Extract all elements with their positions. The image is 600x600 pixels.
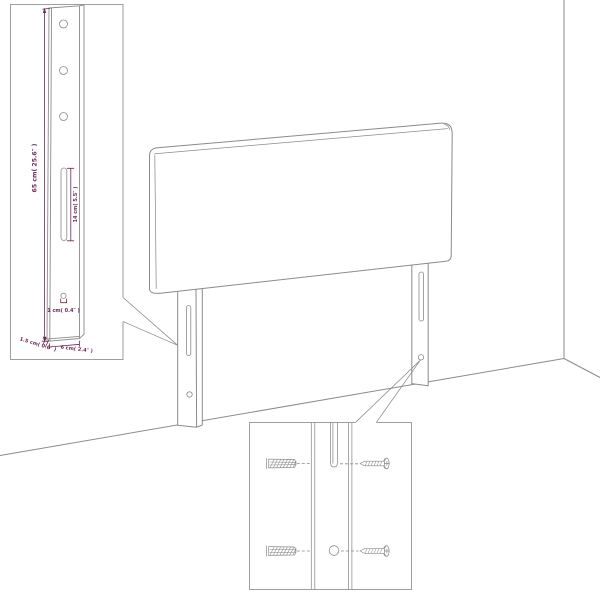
- inset-leg-small-hole: [61, 293, 66, 298]
- inset-leg-hole-2: [60, 67, 68, 75]
- callout-lines-right-inset: [356, 360, 421, 422]
- inset-leg-hole-1: [60, 20, 68, 28]
- right-leg-slot: [419, 272, 424, 321]
- inset-leg-hole-3: [60, 113, 68, 121]
- callout-lines-left-inset: [123, 298, 178, 346]
- left-leg-slot: [186, 306, 190, 356]
- dimension-label-hole-diameter: 1 cm( 0.4″ ): [47, 308, 80, 314]
- inset-mounting-detail: [250, 423, 412, 590]
- dimension-label-leg-height: 65 cm( 25.6″ ): [32, 143, 39, 192]
- floor-line-right: [564, 359, 600, 378]
- right-leg-hole: [418, 355, 423, 360]
- headboard-left-leg: [178, 287, 203, 427]
- left-leg-hole: [187, 392, 192, 397]
- inset-leg-dimensions: 65 cm( 25.6″ ) 14 cm( 5.5″ ) 1 cm( 0.4″ …: [11, 5, 124, 360]
- inset-leg-slot: [61, 168, 67, 241]
- headboard-assembly-diagram: 65 cm( 25.6″ ) 14 cm( 5.5″ ) 1 cm( 0.4″ …: [0, 0, 600, 600]
- dimension-label-slot-length: 14 cm( 5.5″ ): [73, 186, 79, 222]
- headboard-right-leg: [412, 263, 428, 385]
- headboard-panel: [150, 123, 453, 293]
- panel-outline: [150, 123, 453, 293]
- diagram-canvas: 65 cm( 25.6″ ) 14 cm( 5.5″ ) 1 cm( 0.4″ …: [0, 0, 600, 600]
- inset-hole: [329, 546, 339, 556]
